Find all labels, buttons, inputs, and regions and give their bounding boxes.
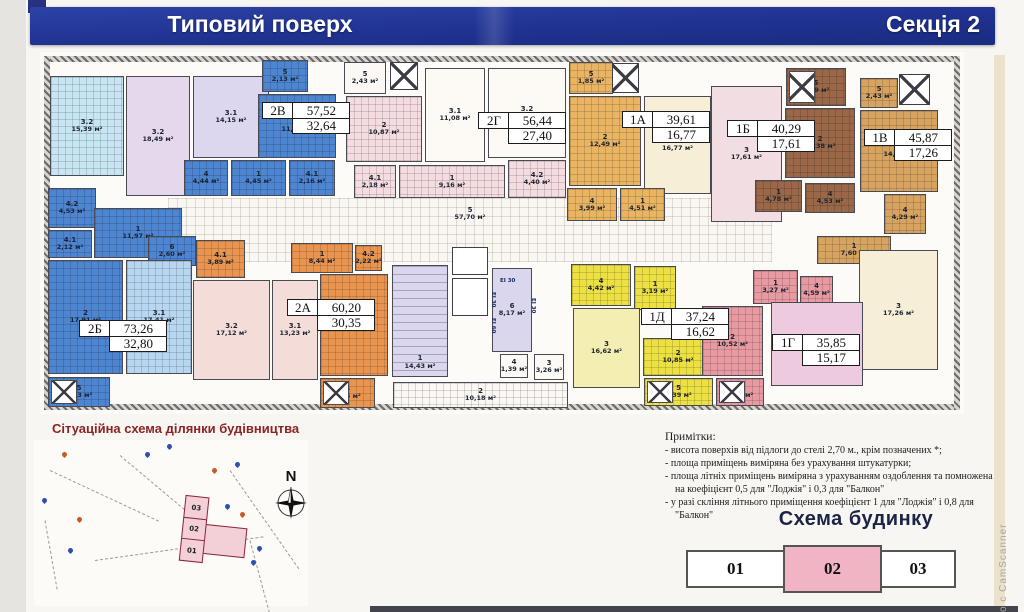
room: 14,45 м² bbox=[231, 160, 286, 196]
room-area: 4,40 м² bbox=[524, 179, 550, 186]
outer-wall bbox=[954, 56, 960, 410]
room-area: 14,43 м² bbox=[405, 363, 436, 370]
elevator-shaft-icon bbox=[612, 63, 639, 93]
room: 41,39 м² bbox=[500, 354, 528, 378]
road-line bbox=[50, 470, 159, 522]
elevator-shaft-icon bbox=[899, 74, 930, 105]
room-area: 1,85 м² bbox=[578, 78, 604, 85]
room-area: 11,08 м² bbox=[440, 115, 471, 122]
map-pin-icon bbox=[224, 503, 231, 510]
room-area: 17,12 м² bbox=[216, 330, 247, 337]
apartment-total-area: 73,26 bbox=[109, 320, 167, 337]
apartment-code: 1В bbox=[864, 129, 896, 146]
apartment-total-area: 40,29 bbox=[757, 120, 815, 137]
apartment-code: 1А bbox=[622, 111, 654, 128]
apartment-living-area: 32,64 bbox=[292, 117, 350, 134]
room: 4.24,40 м² bbox=[508, 160, 566, 198]
room-area: 4,78 м² bbox=[765, 196, 791, 203]
room: 52,13 м² bbox=[262, 60, 308, 92]
apartment-living-area: 27,40 bbox=[508, 127, 566, 144]
room: 14,78 м² bbox=[755, 180, 802, 212]
room-area: 2,18 м² bbox=[362, 182, 388, 189]
room-area: 4,53 м² bbox=[817, 198, 843, 205]
room-area: 1,39 м² bbox=[501, 366, 527, 373]
room-area: 2,12 м² bbox=[57, 244, 83, 251]
apartment-living-area: 17,26 bbox=[894, 144, 952, 161]
room-area: 3,19 м² bbox=[642, 288, 668, 295]
room-area: 8,17 м² bbox=[499, 310, 525, 317]
room-area: 4,53 м² bbox=[59, 208, 85, 215]
room: 44,42 м² bbox=[571, 264, 631, 306]
apartment-living-area: 16,62 bbox=[671, 323, 729, 340]
scheme-block-03: 03 bbox=[880, 550, 956, 588]
building-scheme: 010203 bbox=[688, 545, 960, 593]
apartment-tag-2А: 2А60,2030,35 bbox=[287, 299, 375, 331]
room: 210,87 м² bbox=[346, 96, 422, 162]
room-area: 12,49 м² bbox=[590, 141, 621, 148]
room: 4.12,18 м² bbox=[354, 165, 396, 198]
window-x-symbol bbox=[323, 381, 349, 405]
room-area: 2,16 м² bbox=[299, 178, 325, 185]
apartment-tag-1Г: 1Г35,8515,17 bbox=[772, 334, 860, 366]
map-pin-icon bbox=[239, 511, 246, 518]
map-pin-icon bbox=[144, 451, 151, 458]
apartment-code: 2В bbox=[262, 102, 294, 119]
room-area: 10,87 м² bbox=[369, 129, 400, 136]
room-area: 57,70 м² bbox=[455, 214, 486, 221]
room-area: 4,42 м² bbox=[588, 285, 614, 292]
apartment-total-area: 37,24 bbox=[671, 308, 729, 325]
camscanner-watermark: о с CamScanner bbox=[998, 468, 1009, 612]
apartment-living-area: 16,77 bbox=[652, 126, 710, 143]
fire-rating-label: ЕІ 30 bbox=[530, 298, 536, 313]
room: 217,91 м² bbox=[48, 260, 123, 374]
room-area: 3,27 м² bbox=[762, 287, 788, 294]
room: 52,28 м² bbox=[716, 378, 764, 406]
room: 44,53 м² bbox=[805, 183, 855, 213]
room: 52,43 м² bbox=[860, 78, 898, 108]
room: 43,99 м² bbox=[567, 188, 617, 221]
room-area: 4,29 м² bbox=[892, 214, 918, 221]
room-area: 3,26 м² bbox=[536, 367, 562, 374]
apartment-code: 2Г bbox=[478, 112, 510, 129]
room: 3.111,08 м² bbox=[425, 68, 485, 162]
room: 52,14 м² bbox=[320, 378, 375, 408]
map-pin-icon bbox=[67, 547, 74, 554]
room: 4.24,53 м² bbox=[48, 188, 96, 228]
elevator-shaft-icon bbox=[390, 62, 418, 90]
room: 44,59 м² bbox=[800, 276, 833, 304]
note-item: - площа приміщень виміряна без урахуванн… bbox=[665, 457, 993, 470]
outer-wall bbox=[44, 56, 960, 62]
room-area: 16,62 м² bbox=[591, 348, 622, 355]
elevator-box bbox=[452, 247, 488, 275]
room: 33,26 м² bbox=[534, 354, 564, 380]
note-item: - площа літніх приміщень виміряна з урах… bbox=[665, 470, 993, 496]
room-area: 4,51 м² bbox=[629, 205, 655, 212]
apartment-tag-2Б: 2Б73,2632,80 bbox=[79, 320, 167, 352]
room-area: 4,44 м² bbox=[193, 178, 219, 185]
room-area: 4,45 м² bbox=[245, 178, 271, 185]
room-area: 8,44 м² bbox=[309, 258, 335, 265]
room-area: 18,49 м² bbox=[143, 136, 174, 143]
room-area: 2,43 м² bbox=[866, 93, 892, 100]
room: 52,43 м² bbox=[344, 62, 386, 94]
room: 114,43 м² bbox=[392, 265, 448, 377]
site-plan-title: Сітуаційна схема ділянки будівництва bbox=[52, 421, 299, 436]
apartment-living-area: 15,17 bbox=[802, 349, 860, 366]
apartment-code: 2А bbox=[287, 299, 319, 316]
notes-title: Примітки: bbox=[665, 431, 993, 443]
scheme-block-01: 01 bbox=[686, 550, 785, 588]
note-item: - висота поверхів від підлоги до стелі 2… bbox=[665, 444, 993, 457]
apartment-tag-2Г: 2Г56,4427,40 bbox=[478, 112, 566, 144]
apartment-code: 1Г bbox=[772, 334, 804, 351]
fire-rating-label: ЕІ 30 bbox=[500, 278, 515, 284]
scheme-block-02: 02 bbox=[783, 545, 882, 593]
compass-needle-icon bbox=[274, 485, 308, 521]
map-pin-icon bbox=[256, 545, 263, 552]
map-pin-icon bbox=[41, 497, 48, 504]
fire-rating-label: ЕІ 30 bbox=[490, 292, 496, 307]
site-building-section-01: 01 bbox=[179, 538, 205, 563]
room: 3.215,39 м² bbox=[50, 76, 124, 176]
map-pin-icon bbox=[166, 443, 173, 450]
room: 3.217,12 м² bbox=[193, 280, 270, 380]
compass-rose: N bbox=[274, 468, 308, 525]
room-area: 2,43 м² bbox=[352, 78, 378, 85]
room-area: 2,22 м² bbox=[355, 258, 381, 265]
room: 14,51 м² bbox=[620, 188, 665, 221]
room-area: 15,39 м² bbox=[72, 126, 103, 133]
road-line bbox=[250, 540, 274, 612]
apartment-total-area: 45,87 bbox=[894, 129, 952, 146]
map-pin-icon bbox=[234, 461, 241, 468]
room: 19,16 м² bbox=[399, 165, 505, 198]
apartment-tag-1В: 1В45,8717,26 bbox=[864, 129, 952, 161]
room: 52,39 м² bbox=[644, 378, 713, 406]
apartment-living-area: 17,61 bbox=[757, 135, 815, 152]
room-area: 10,18 м² bbox=[465, 395, 496, 402]
room: 4.22,22 м² bbox=[355, 245, 382, 271]
apartment-code: 1Д bbox=[641, 308, 673, 325]
apartment-total-area: 60,20 bbox=[317, 299, 375, 316]
window-x-symbol bbox=[647, 381, 673, 403]
elevator-box bbox=[452, 278, 488, 316]
room-area: 9,16 м² bbox=[439, 182, 465, 189]
road-line bbox=[45, 520, 58, 589]
room: 4.13,89 м² bbox=[196, 240, 245, 278]
apartment-living-area: 30,35 bbox=[317, 314, 375, 331]
map-pin-icon bbox=[61, 451, 68, 458]
apartment-total-area: 56,44 bbox=[508, 112, 566, 129]
room: 44,44 м² bbox=[184, 160, 228, 196]
room: 316,62 м² bbox=[573, 308, 640, 388]
room: 4.12,16 м² bbox=[289, 160, 335, 196]
window-x-symbol bbox=[789, 71, 815, 103]
room: 44,29 м² bbox=[884, 194, 926, 234]
apartment-living-area: 32,80 bbox=[109, 335, 167, 352]
room: 18,44 м² bbox=[291, 243, 353, 273]
apartment-total-area: 35,85 bbox=[802, 334, 860, 351]
room: 13,19 м² bbox=[634, 266, 676, 310]
apartment-code: 2Б bbox=[79, 320, 111, 337]
room: 317,26 м² bbox=[859, 250, 938, 370]
room: 52,23 м² bbox=[48, 377, 110, 407]
room: 210,18 м² bbox=[393, 382, 568, 408]
room: 51,85 м² bbox=[569, 62, 613, 94]
room-area: 3,89 м² bbox=[207, 259, 233, 266]
room-area: 16,77 м² bbox=[662, 145, 693, 152]
room-area: 4,59 м² bbox=[803, 290, 829, 297]
room-area: 2,60 м² bbox=[159, 251, 185, 258]
window-x-symbol bbox=[719, 381, 745, 403]
room-area: 17,26 м² bbox=[883, 310, 914, 317]
compass-north-label: N bbox=[274, 468, 308, 485]
apartment-tag-1А: 1А39,6116,77 bbox=[622, 111, 710, 143]
apartment-tag-1Б: 1Б40,2917,61 bbox=[727, 120, 815, 152]
room: 3.117,41 м² bbox=[126, 260, 192, 374]
apartment-total-area: 57,52 bbox=[292, 102, 350, 119]
room-area: 17,61 м² bbox=[731, 154, 762, 161]
apartment-tag-1Д: 1Д37,2416,62 bbox=[641, 308, 729, 340]
building-scheme-title: Схема будинку bbox=[745, 508, 967, 531]
window-x-symbol bbox=[51, 380, 77, 404]
site-plan-building-wing bbox=[201, 524, 248, 558]
scanned-floorplan-page: Типовий поверх Секція 2 557,70 м²210,18 … bbox=[0, 0, 1024, 612]
site-plan-map: 030201 N bbox=[34, 440, 308, 606]
fire-rating-label: ЕІ 60 bbox=[490, 318, 496, 333]
apartment-code: 1Б bbox=[727, 120, 759, 137]
map-pin-icon bbox=[76, 516, 83, 523]
map-pin-icon bbox=[211, 467, 218, 474]
room-area: 10,52 м² bbox=[717, 341, 748, 348]
apartment-total-area: 39,61 bbox=[652, 111, 710, 128]
room-area: 10,85 м² bbox=[663, 357, 694, 364]
room: 52,29 м² bbox=[786, 68, 846, 106]
room-area: 14,15 м² bbox=[216, 117, 247, 124]
room-area: 2,13 м² bbox=[272, 76, 298, 83]
apartment-tag-2В: 2В57,5232,64 bbox=[262, 102, 350, 134]
room: 3.218,49 м² bbox=[126, 76, 190, 196]
room: 13,27 м² bbox=[753, 270, 798, 304]
room: 4.12,12 м² bbox=[48, 230, 92, 258]
room-area: 3,99 м² bbox=[579, 205, 605, 212]
